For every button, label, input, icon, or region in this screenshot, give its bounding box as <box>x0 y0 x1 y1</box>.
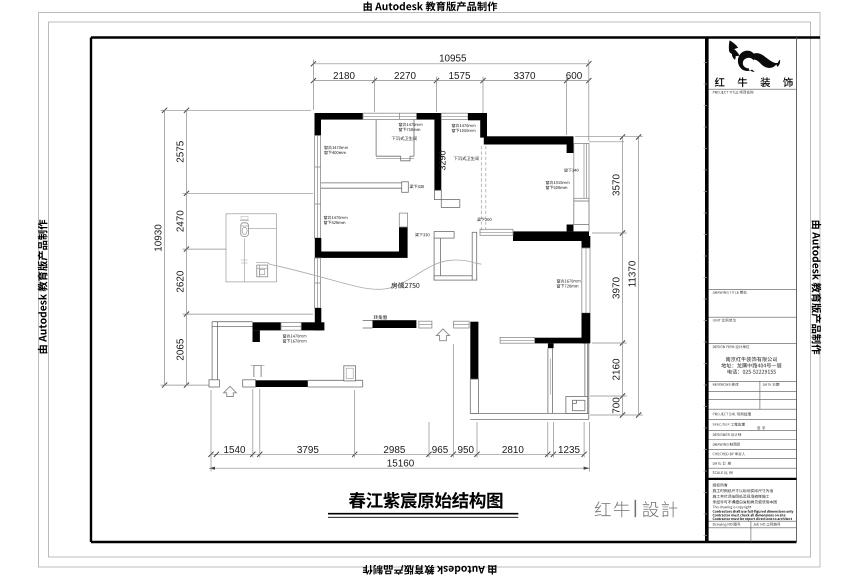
svg-text:3290: 3290 <box>438 150 448 170</box>
svg-text:3370: 3370 <box>514 71 536 82</box>
svg-text:965: 965 <box>432 445 449 456</box>
svg-text:10955: 10955 <box>439 53 467 64</box>
svg-text:2180: 2180 <box>333 71 355 82</box>
svg-text:3795: 3795 <box>297 445 319 456</box>
svg-text:2620: 2620 <box>176 270 187 292</box>
svg-text:15160: 15160 <box>387 459 415 470</box>
svg-text:2065: 2065 <box>176 338 187 360</box>
svg-text:2575: 2575 <box>176 140 187 162</box>
svg-text:3970: 3970 <box>612 277 623 299</box>
svg-text:1575: 1575 <box>449 71 471 82</box>
svg-text:1235: 1235 <box>558 445 580 456</box>
svg-text:2270: 2270 <box>394 71 416 82</box>
svg-text:2985: 2985 <box>383 445 405 456</box>
svg-text:2160: 2160 <box>612 358 623 380</box>
svg-text:3570: 3570 <box>612 174 623 196</box>
svg-text:1540: 1540 <box>224 445 246 456</box>
svg-text:950: 950 <box>458 445 475 456</box>
svg-text:10930: 10930 <box>154 224 165 252</box>
svg-text:2470: 2470 <box>176 210 187 232</box>
svg-text:11370: 11370 <box>628 260 639 287</box>
svg-text:700: 700 <box>612 397 623 414</box>
svg-text:600: 600 <box>566 71 583 82</box>
svg-text:2810: 2810 <box>502 445 524 456</box>
